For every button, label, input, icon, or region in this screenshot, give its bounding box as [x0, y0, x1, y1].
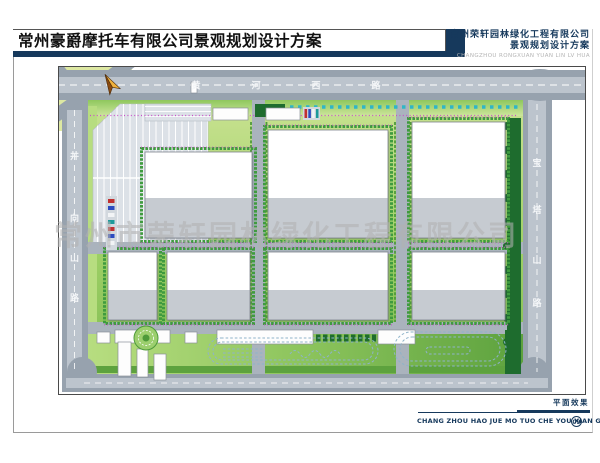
road-label-left: 山: [70, 252, 79, 264]
factory-building: [408, 117, 509, 243]
road-label-left: 井: [70, 150, 79, 162]
small-building: [137, 349, 148, 377]
small-building: [213, 108, 248, 120]
parked-cars-north: [303, 107, 320, 120]
small-building: [154, 354, 166, 380]
company-block: 常州荣轩园林绿化工程有限公司 景观规划设计方案 CHANGZHOU RONGXU…: [450, 30, 590, 60]
site-plan-map: 黄 河 西 路 井 向 山 路 宝 塔 山 路: [58, 66, 586, 395]
page-title: 常州豪爵摩托车有限公司景观规划设计方案: [13, 30, 445, 52]
footer-rule-thick: [517, 410, 590, 414]
footer-rule-thin: [418, 412, 520, 413]
small-building: [266, 108, 300, 120]
south-hedge-strip: [88, 366, 523, 373]
road-label-top: 西: [311, 81, 320, 92]
road-label-top: 黄: [191, 80, 200, 92]
factory-building: [408, 247, 509, 325]
road-label-left: 路: [70, 292, 80, 304]
view-type-label: 平面效果: [553, 397, 589, 408]
road-label-top: 河: [251, 80, 260, 92]
small-building: [185, 332, 197, 343]
road-label-right: 路: [532, 297, 542, 309]
factory-building: [141, 147, 256, 243]
road-label-top: 路: [371, 80, 381, 92]
factory-building: [104, 247, 161, 325]
title-underline-bar: [13, 51, 465, 57]
circular-plaza: [134, 326, 158, 350]
factory-building: [264, 125, 392, 243]
small-building: [118, 342, 131, 376]
company-name: 常州荣轩园林绿化工程有限公司: [450, 30, 590, 41]
title-block: 常州豪爵摩托车有限公司景观规划设计方案: [13, 29, 446, 51]
company-name-en: CHANGZHOU RONGXUAN YUAN LIN LV HUA: [450, 52, 590, 60]
company-subtitle: 景观规划设计方案: [450, 41, 590, 52]
southeast-tree-block: [505, 330, 521, 374]
parked-cars-column: [106, 196, 117, 250]
road-label-right: 宝: [532, 157, 541, 169]
road-label-left: 向: [70, 212, 79, 224]
road-label-right: 塔: [532, 204, 542, 216]
drawing-sheet: 常州豪爵摩托车有限公司景观规划设计方案 常州荣轩园林绿化工程有限公司 景观规划设…: [0, 0, 600, 463]
small-building: [97, 332, 110, 343]
factory-building: [163, 247, 254, 325]
sheet-number-badge: 09: [571, 416, 582, 427]
factory-building: [264, 247, 392, 325]
road-label-right: 山: [532, 254, 541, 266]
small-building: [378, 330, 415, 344]
